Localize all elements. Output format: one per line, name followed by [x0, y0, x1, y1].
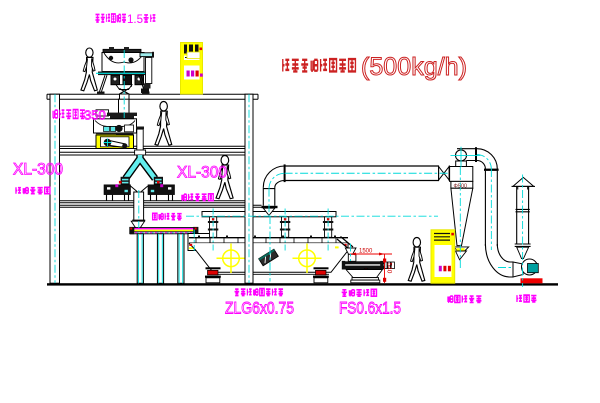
- svg-text:FS0.6x1.5: FS0.6x1.5: [339, 299, 401, 318]
- svg-text:ZLG6x0.75: ZLG6x0.75: [225, 299, 294, 318]
- svg-text:XL-300: XL-300: [177, 164, 227, 182]
- svg-text:Φ500: Φ500: [454, 183, 468, 189]
- svg-text:350: 350: [84, 108, 106, 123]
- svg-text:540: 540: [386, 263, 393, 274]
- svg-text:(500kg/h): (500kg/h): [361, 53, 467, 81]
- svg-text:1500: 1500: [359, 249, 373, 255]
- svg-text:1.5: 1.5: [127, 14, 143, 26]
- svg-text:XL-300: XL-300: [13, 161, 63, 179]
